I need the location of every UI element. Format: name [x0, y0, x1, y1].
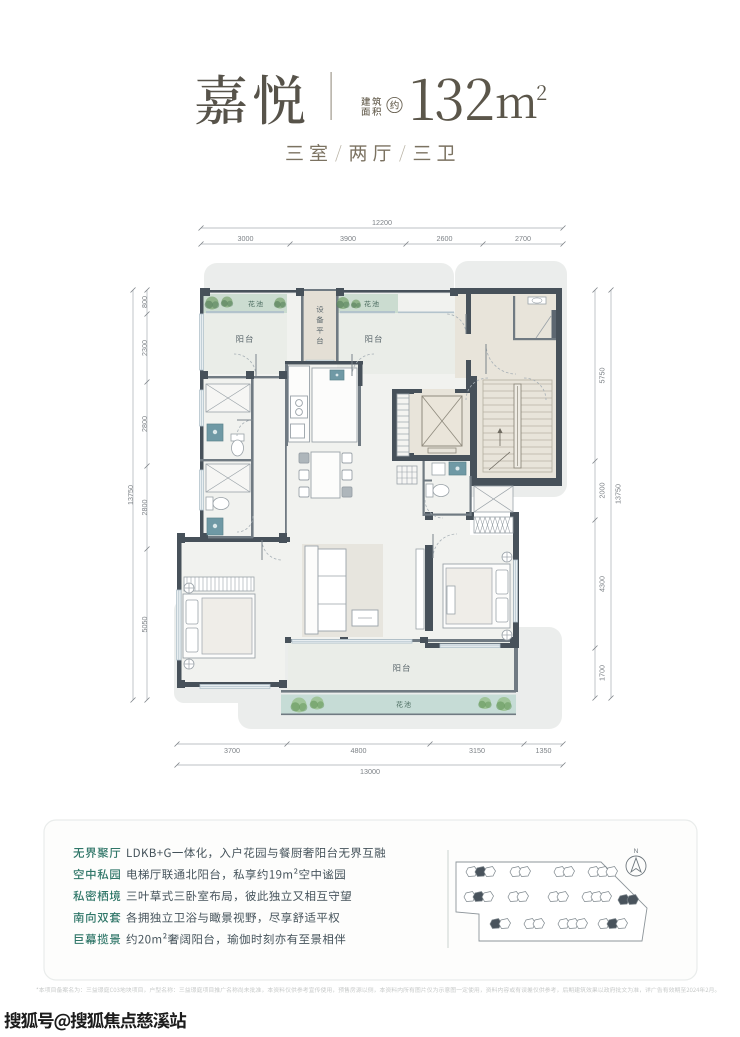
- svg-text:5050: 5050: [140, 617, 149, 633]
- svg-text:2600: 2600: [437, 234, 453, 243]
- svg-text:800: 800: [140, 296, 149, 308]
- svg-text:1700: 1700: [598, 665, 607, 681]
- svg-text:3150: 3150: [469, 746, 485, 755]
- svg-text:13000: 13000: [360, 767, 380, 776]
- svg-text:2800: 2800: [140, 500, 149, 516]
- svg-text:13750: 13750: [614, 484, 623, 504]
- svg-text:2000: 2000: [598, 483, 607, 499]
- svg-text:2300: 2300: [140, 340, 149, 356]
- svg-text:4800: 4800: [351, 746, 367, 755]
- svg-text:2800: 2800: [140, 416, 149, 432]
- svg-text:N: N: [634, 848, 639, 855]
- svg-text:3700: 3700: [224, 746, 240, 755]
- svg-text:12200: 12200: [372, 218, 392, 227]
- svg-text:5750: 5750: [598, 368, 607, 384]
- svg-text:13750: 13750: [126, 485, 135, 505]
- svg-text:4300: 4300: [598, 576, 607, 592]
- svg-text:2700: 2700: [515, 234, 531, 243]
- svg-text:3900: 3900: [340, 234, 356, 243]
- svg-text:3000: 3000: [238, 234, 254, 243]
- svg-text:1350: 1350: [536, 746, 552, 755]
